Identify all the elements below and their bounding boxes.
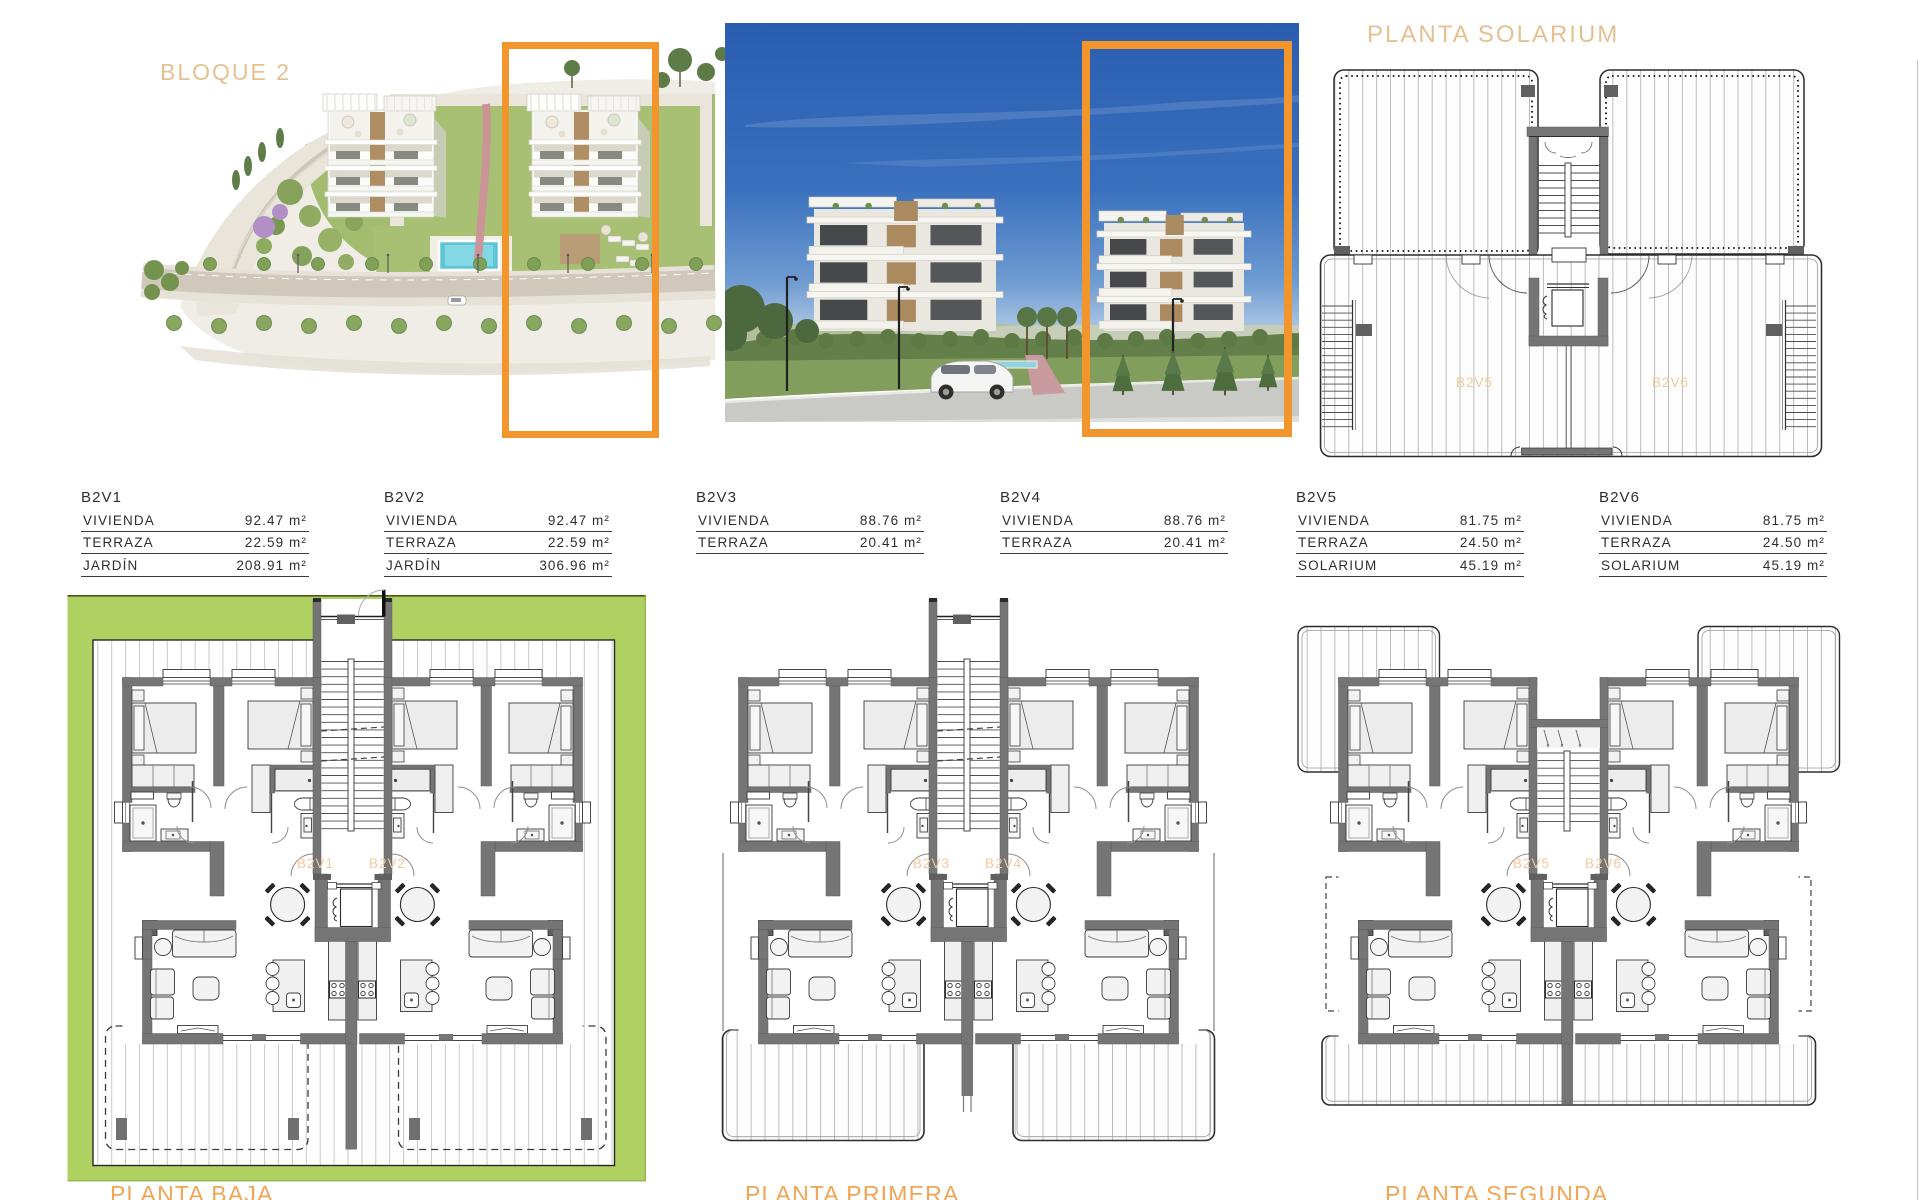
svg-text:B2V4: B2V4: [985, 856, 1022, 871]
svg-text:B2V3: B2V3: [913, 856, 950, 871]
svg-text:B2V5: B2V5: [1456, 375, 1493, 390]
svg-text:B2V1: B2V1: [297, 856, 334, 871]
svg-text:B2V2: B2V2: [369, 856, 406, 871]
svg-text:B2V6: B2V6: [1652, 375, 1689, 390]
svg-text:B2V6: B2V6: [1585, 856, 1622, 871]
svg-text:B2V5: B2V5: [1513, 856, 1550, 871]
